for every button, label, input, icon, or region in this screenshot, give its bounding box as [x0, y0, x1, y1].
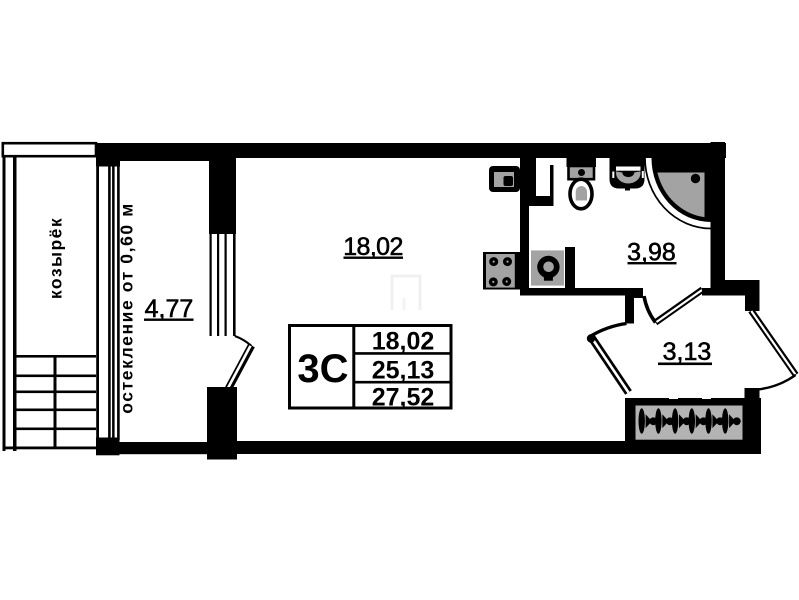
svg-text:25,13: 25,13	[372, 357, 435, 385]
svg-text:козырёк: козырёк	[46, 217, 66, 299]
svg-text:3С: 3С	[297, 347, 348, 391]
svg-text:3,13: 3,13	[663, 338, 712, 366]
svg-text:18,02: 18,02	[372, 328, 435, 356]
svg-text:27,52: 27,52	[372, 384, 435, 412]
svg-text:остекление от 0,60 м: остекление от 0,60 м	[117, 202, 137, 414]
